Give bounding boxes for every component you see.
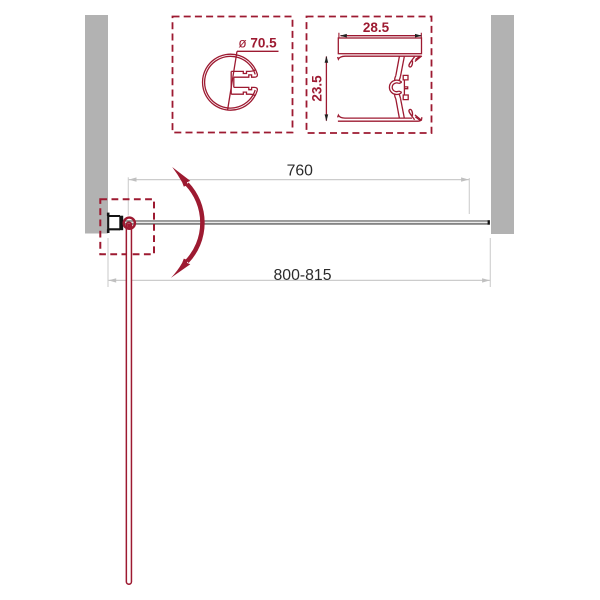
svg-text:760: 760: [287, 162, 314, 179]
svg-text:800-815: 800-815: [274, 267, 332, 284]
svg-text:28.5: 28.5: [363, 20, 390, 35]
svg-text:23.5: 23.5: [310, 75, 325, 102]
svg-text:ø 70.5: ø 70.5: [238, 36, 277, 51]
